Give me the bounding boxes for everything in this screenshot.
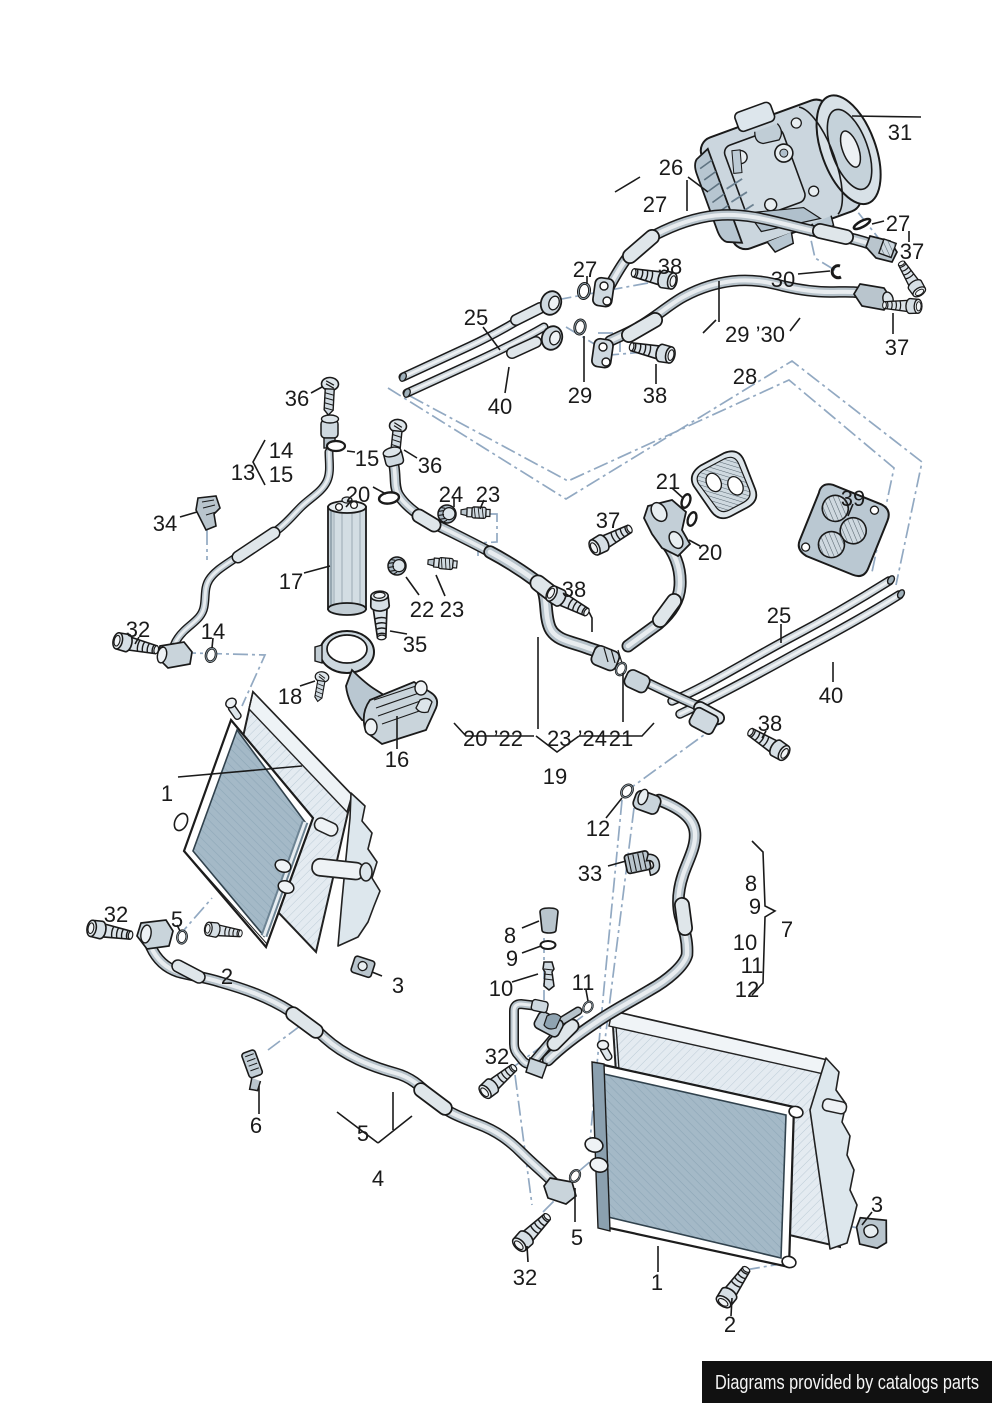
svg-text:14: 14 <box>201 619 225 644</box>
svg-text:18: 18 <box>278 684 302 709</box>
svg-text:36: 36 <box>285 386 309 411</box>
svg-text:30: 30 <box>771 267 795 292</box>
svg-text:40: 40 <box>819 683 843 708</box>
svg-text:27: 27 <box>573 257 597 282</box>
svg-text:21: 21 <box>656 469 680 494</box>
svg-text:12: 12 <box>735 977 759 1002</box>
svg-text:22: 22 <box>410 597 434 622</box>
svg-text:38: 38 <box>758 711 782 736</box>
svg-text:29 ’30: 29 ’30 <box>725 322 785 347</box>
svg-text:27: 27 <box>643 192 667 217</box>
svg-text:4: 4 <box>372 1166 384 1191</box>
svg-text:38: 38 <box>562 577 586 602</box>
svg-text:17: 17 <box>279 569 303 594</box>
svg-text:15: 15 <box>355 446 379 471</box>
svg-text:16: 16 <box>385 747 409 772</box>
svg-text:23 ’24: 23 ’24 <box>547 726 607 751</box>
svg-text:20: 20 <box>346 482 370 507</box>
svg-text:37: 37 <box>596 508 620 533</box>
svg-text:7: 7 <box>781 917 793 942</box>
svg-text:38: 38 <box>658 254 682 279</box>
svg-text:26: 26 <box>659 155 683 180</box>
svg-text:5: 5 <box>357 1121 369 1146</box>
svg-text:24: 24 <box>439 482 463 507</box>
svg-text:5: 5 <box>171 907 183 932</box>
svg-text:11: 11 <box>741 953 764 978</box>
svg-text:38: 38 <box>643 383 667 408</box>
svg-text:9: 9 <box>506 946 518 971</box>
svg-text:27: 27 <box>886 211 910 236</box>
svg-text:23: 23 <box>476 482 500 507</box>
svg-text:13: 13 <box>231 460 255 485</box>
svg-text:20 ’22: 20 ’22 <box>463 726 523 751</box>
svg-text:36: 36 <box>418 453 442 478</box>
svg-text:40: 40 <box>488 394 512 419</box>
svg-text:35: 35 <box>403 632 427 657</box>
svg-text:2: 2 <box>724 1312 736 1337</box>
svg-text:6: 6 <box>250 1113 262 1138</box>
svg-text:25: 25 <box>464 305 488 330</box>
svg-text:29: 29 <box>568 383 592 408</box>
svg-text:1: 1 <box>161 781 173 806</box>
svg-text:12: 12 <box>586 816 610 841</box>
svg-text:8: 8 <box>504 923 516 948</box>
svg-text:37: 37 <box>900 239 924 264</box>
svg-text:23: 23 <box>440 597 464 622</box>
svg-text:8: 8 <box>745 871 757 896</box>
svg-text:21: 21 <box>609 726 633 751</box>
svg-text:20: 20 <box>698 540 722 565</box>
svg-text:34: 34 <box>153 511 177 536</box>
svg-text:37: 37 <box>885 335 909 360</box>
svg-text:10: 10 <box>489 976 513 1001</box>
svg-text:15: 15 <box>269 462 293 487</box>
svg-text:39: 39 <box>841 486 865 511</box>
svg-text:3: 3 <box>392 973 404 998</box>
svg-text:33: 33 <box>578 861 602 886</box>
svg-text:31: 31 <box>888 120 912 145</box>
svg-text:10: 10 <box>733 930 757 955</box>
svg-text:19: 19 <box>543 764 567 789</box>
svg-text:11: 11 <box>572 970 595 995</box>
svg-text:Diagrams provided by catalogs: Diagrams provided by catalogs parts <box>715 1372 979 1394</box>
svg-text:25: 25 <box>767 603 791 628</box>
svg-text:9: 9 <box>749 894 761 919</box>
svg-text:28: 28 <box>733 364 757 389</box>
svg-text:32: 32 <box>126 617 150 642</box>
svg-text:3: 3 <box>871 1192 883 1217</box>
svg-text:32: 32 <box>485 1044 509 1069</box>
svg-text:32: 32 <box>104 902 128 927</box>
svg-text:1: 1 <box>651 1270 663 1295</box>
svg-text:14: 14 <box>269 438 293 463</box>
svg-text:32: 32 <box>513 1265 537 1290</box>
svg-text:5: 5 <box>571 1225 583 1250</box>
svg-text:2: 2 <box>221 964 233 989</box>
